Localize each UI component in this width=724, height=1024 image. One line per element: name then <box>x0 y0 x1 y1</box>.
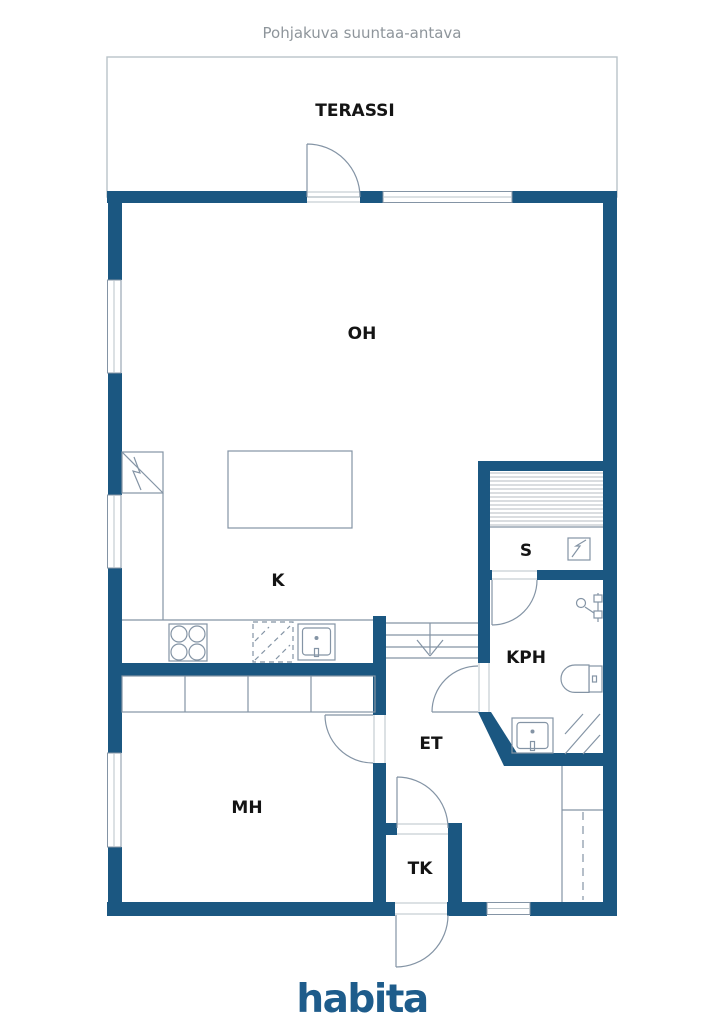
sink-icon <box>298 624 335 660</box>
wall-segment <box>448 823 462 902</box>
room-label-k: K <box>271 571 285 591</box>
utility-door-swing <box>397 777 448 828</box>
window-left-1 <box>108 280 122 373</box>
wall-segment <box>360 191 383 203</box>
dishwasher-icon <box>253 622 293 662</box>
sauna-door-opening <box>492 571 537 579</box>
wall-segment <box>108 373 122 495</box>
bedroom-door-opening <box>374 715 385 763</box>
page-title: Pohjakuva suuntaa-antava <box>263 24 462 42</box>
wall-segment <box>504 753 603 766</box>
bathroom-sink-icon <box>512 718 553 753</box>
sauna-door-swing <box>492 580 537 625</box>
door-swings <box>307 144 537 967</box>
room-label-kph: KPH <box>506 648 546 668</box>
terrace: TERASSI <box>107 57 617 197</box>
bathroom-door-swing <box>432 666 478 712</box>
wall-segment <box>478 570 492 580</box>
window-top <box>383 192 512 203</box>
floor-plan: Pohjakuva suuntaa-antava TERASSI <box>0 0 724 1024</box>
room-label-terassi: TERASSI <box>315 101 395 121</box>
wall-segment <box>108 191 122 280</box>
exterior-walls <box>107 191 617 916</box>
wall-segment <box>447 902 487 916</box>
wall-segment <box>107 902 395 916</box>
wall-segment <box>537 570 603 580</box>
sauna-bench-stripes <box>490 473 603 525</box>
wall-segment <box>373 823 397 835</box>
terrace-outline <box>107 57 617 197</box>
habita-logo: habita <box>296 977 427 1022</box>
room-label-s: S <box>520 541 532 561</box>
water-heater-icon <box>565 714 600 754</box>
wall-segment <box>478 461 490 663</box>
wall-segment <box>107 191 307 203</box>
toilet-icon <box>561 665 602 692</box>
window-bottom <box>487 903 530 915</box>
fireplace-icon <box>122 452 163 493</box>
room-label-et: ET <box>419 734 443 754</box>
room-label-tk: TK <box>408 859 434 879</box>
window-left-3 <box>108 753 122 847</box>
window-left-2 <box>108 495 122 568</box>
room-label-oh: OH <box>348 324 377 344</box>
floor-plan-page: Pohjakuva suuntaa-antava TERASSI <box>0 0 724 1024</box>
wall-segment <box>108 568 122 753</box>
wall-segment <box>530 902 617 916</box>
kitchen-fixtures <box>122 452 373 662</box>
sauna-fixtures <box>490 473 603 560</box>
stairs-down-arrow-icon <box>386 623 478 658</box>
room-label-mh: MH <box>231 798 262 818</box>
closet-rail-icon <box>562 766 603 902</box>
shower-icon <box>577 593 603 622</box>
wardrobes <box>122 676 375 712</box>
sauna-stove-icon <box>568 538 590 560</box>
wall-segment <box>603 191 617 916</box>
windows <box>108 192 531 915</box>
wall-segment <box>478 461 603 471</box>
utility-door-opening <box>397 824 448 834</box>
bathroom-fixtures <box>512 593 602 754</box>
dining-table <box>228 451 352 528</box>
wall-segment <box>512 191 617 203</box>
stove-icon <box>169 624 207 661</box>
entrance-door-swing <box>396 915 448 967</box>
entrance-door-opening <box>395 903 447 914</box>
bathroom-door-opening <box>479 663 489 712</box>
door-openings <box>307 192 537 914</box>
bedroom-door-swing <box>325 715 373 763</box>
wall-segment <box>108 663 386 676</box>
